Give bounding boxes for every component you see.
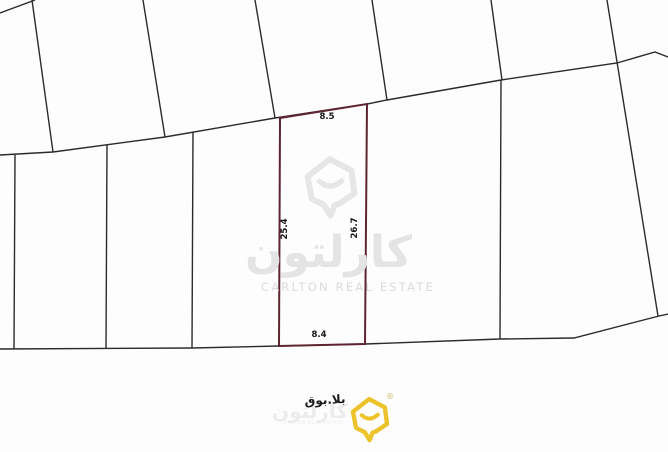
parcel-boundary-line (607, 0, 658, 316)
parcel-boundary-line (500, 80, 501, 339)
carlton-logo-icon (348, 396, 392, 444)
parcel-boundary-line (14, 155, 15, 349)
map-arabic-annotation: بلا.بوق (297, 392, 354, 409)
parcel-boundary-line (192, 132, 193, 348)
carlton-logo-watermark-icon (301, 155, 361, 221)
carlton-arabic-wordmark-watermark: كارلتون (256, 226, 412, 280)
footer-carlton-english-watermark: CARLTON REAL ESTATE (276, 421, 348, 426)
smile-stroke (362, 415, 378, 419)
parcel-boundary-line (491, 0, 502, 80)
parcel-boundary-line (255, 0, 275, 118)
plot-dimension-label-top: 8.5 (319, 112, 334, 122)
smile-stroke (320, 181, 342, 186)
carlton-english-wordmark-watermark: CARLTON REAL ESTATE (261, 280, 411, 294)
parcel-boundary-line (32, 0, 53, 152)
plot-dimension-label-bottom: 8.4 (311, 330, 326, 340)
registered-trademark-icon: ® (386, 392, 394, 401)
parcel-boundary-line (106, 145, 107, 349)
parcel-boundary-line (0, 0, 35, 13)
land-plot-map-image: 8.525.426.78.4 كارلتون CARLTON REAL ESTA… (0, 0, 668, 452)
parcel-boundary-line (372, 0, 387, 100)
parcel-boundary-line (143, 0, 165, 137)
street-boundary-polyline (0, 52, 668, 155)
